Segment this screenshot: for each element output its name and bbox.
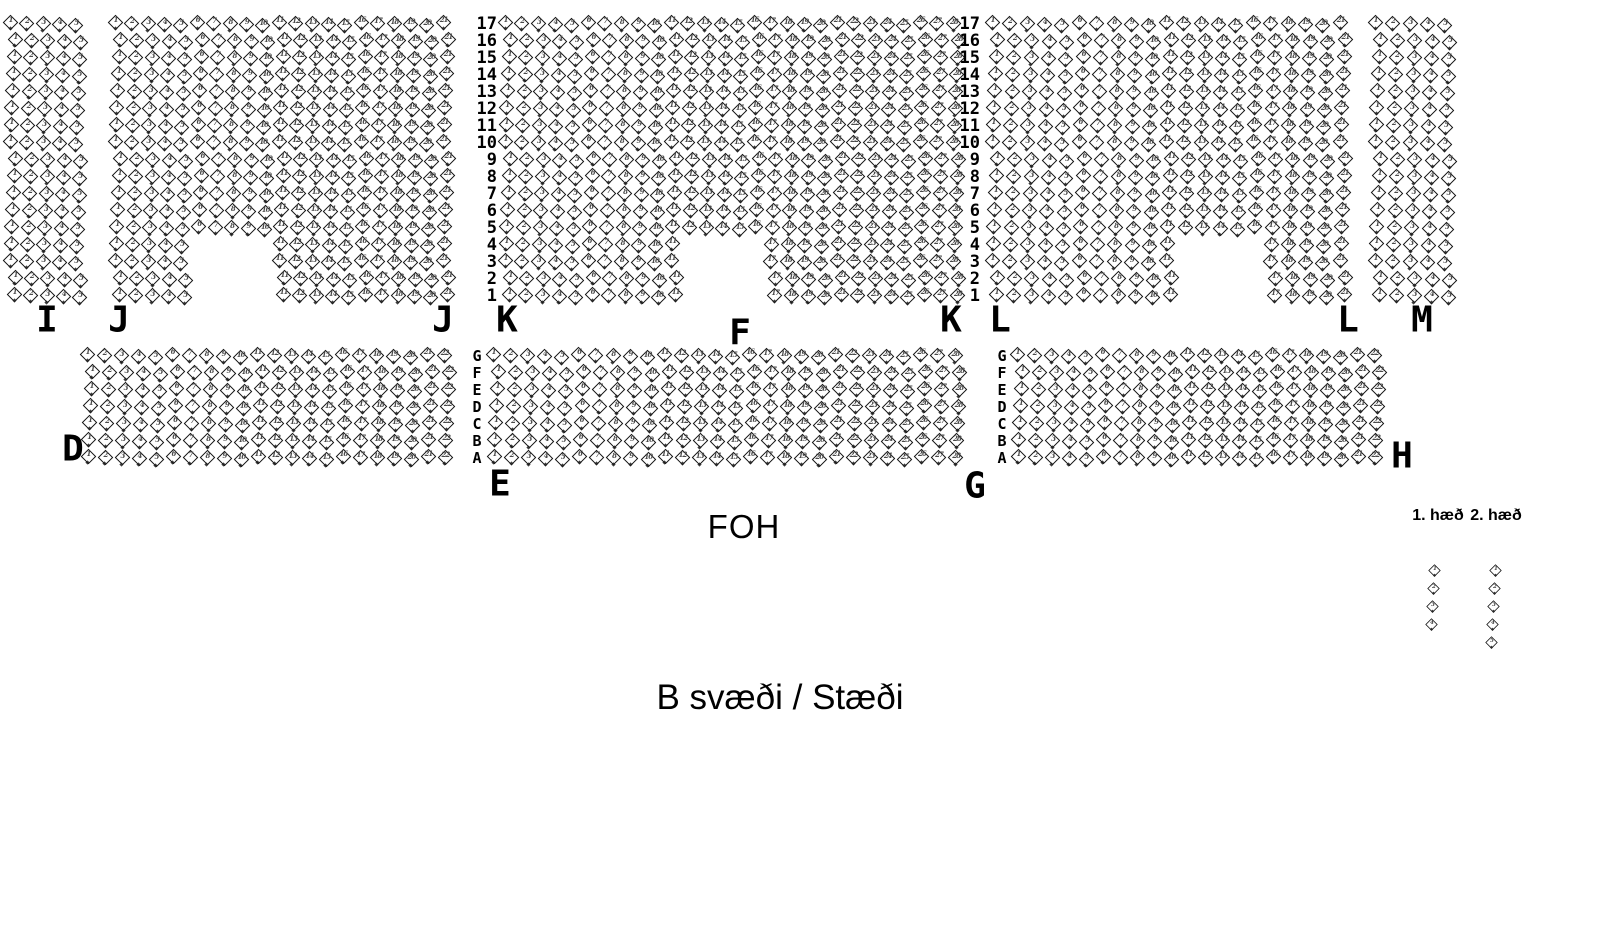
seat-icon[interactable]: 18 xyxy=(780,17,795,32)
seat-icon[interactable]: 14 xyxy=(326,34,341,49)
seat-icon[interactable]: 14 xyxy=(717,187,732,202)
seat-icon[interactable]: 4 xyxy=(132,451,147,466)
seat-icon[interactable]: 13 xyxy=(1214,349,1229,364)
seat-icon[interactable]: 2 xyxy=(1003,254,1018,269)
seat-icon[interactable]: 15 xyxy=(321,418,336,433)
seat-icon[interactable]: 18 xyxy=(777,349,792,364)
seat-icon[interactable]: 2 xyxy=(101,382,116,397)
seat-icon[interactable]: 4 xyxy=(1038,119,1053,134)
seat-icon[interactable]: 1 xyxy=(1369,236,1384,251)
seat-icon[interactable]: 3 xyxy=(525,366,540,381)
seat-icon[interactable]: 2 xyxy=(100,416,115,431)
seat-icon[interactable]: 19 xyxy=(1299,119,1314,134)
seat-icon[interactable]: 15 xyxy=(1229,18,1244,33)
seat-icon[interactable]: 15 xyxy=(342,290,357,305)
seat-icon[interactable]: 8 xyxy=(1112,153,1127,168)
seat-icon[interactable]: 15 xyxy=(734,188,749,203)
seat-icon[interactable]: 23 xyxy=(864,434,879,449)
seat-icon[interactable]: 26 xyxy=(914,236,929,251)
seat-icon[interactable]: 13 xyxy=(1196,221,1211,236)
seat-icon[interactable]: 22 xyxy=(850,67,865,82)
seat-icon[interactable]: 5 xyxy=(175,120,190,135)
seat-icon[interactable]: 18 xyxy=(370,451,385,466)
seat-icon[interactable]: 21 xyxy=(439,66,454,81)
seat-icon[interactable]: 8 xyxy=(614,255,629,270)
seat-icon[interactable]: 9 xyxy=(625,417,640,432)
seat-icon[interactable]: 3 xyxy=(38,85,53,100)
seat-icon[interactable]: 4 xyxy=(552,289,567,304)
seat-icon[interactable]: 16 xyxy=(1250,168,1265,183)
seat-icon[interactable]: 6 xyxy=(194,49,209,64)
seat-icon[interactable]: 3 xyxy=(144,187,159,202)
seat-icon[interactable]: 11 xyxy=(669,270,684,285)
seat-icon[interactable]: 15 xyxy=(320,435,335,450)
seat-icon[interactable]: 1 xyxy=(491,364,506,379)
seat-icon[interactable]: 2 xyxy=(1390,33,1405,48)
seat-icon[interactable]: 21 xyxy=(1336,83,1351,98)
seat-icon[interactable]: 14 xyxy=(325,289,340,304)
seat-icon[interactable]: 8 xyxy=(228,34,243,49)
seat-icon[interactable]: 18 xyxy=(1283,85,1298,100)
seat-icon[interactable]: 20 xyxy=(421,103,436,118)
seat-icon[interactable]: 14 xyxy=(1211,136,1226,151)
seat-icon[interactable]: 2 xyxy=(1030,399,1045,414)
seat-icon[interactable]: 4 xyxy=(1423,85,1438,100)
seat-icon[interactable]: 6 xyxy=(1072,253,1087,268)
seat-icon[interactable]: 2 xyxy=(516,118,531,133)
seat-icon[interactable]: 4 xyxy=(1041,68,1056,83)
seat-icon[interactable]: 18 xyxy=(1300,451,1315,466)
seat-icon[interactable]: 18 xyxy=(391,289,406,304)
seat-icon[interactable]: 4 xyxy=(161,170,176,185)
seat-icon[interactable]: 3 xyxy=(145,51,160,66)
seat-icon[interactable]: 19 xyxy=(408,34,423,49)
seat-icon[interactable]: 1 xyxy=(4,117,19,132)
seat-icon[interactable]: 14 xyxy=(323,102,338,117)
seat-icon[interactable]: 4 xyxy=(136,366,151,381)
seat-icon[interactable]: 17 xyxy=(1266,84,1281,99)
seat-icon[interactable]: 7 xyxy=(210,67,225,82)
seat-icon[interactable]: 15 xyxy=(728,418,743,433)
seat-icon[interactable]: 11 xyxy=(275,66,290,81)
seat-icon[interactable]: 3 xyxy=(36,17,51,32)
seat-icon[interactable]: 3 xyxy=(1405,204,1420,219)
seat-icon[interactable]: 24 xyxy=(883,68,898,83)
seat-icon[interactable]: 4 xyxy=(1424,51,1439,66)
seat-icon[interactable]: 9 xyxy=(241,102,256,117)
seat-icon[interactable]: 18 xyxy=(1301,434,1316,449)
seat-icon[interactable]: 8 xyxy=(1134,366,1149,381)
seat-icon[interactable]: 19 xyxy=(1303,272,1318,287)
seat-icon[interactable]: 19 xyxy=(1298,136,1313,151)
seat-icon[interactable]: 3 xyxy=(524,400,539,415)
seat-icon[interactable]: 3 xyxy=(1047,400,1062,415)
seat-icon[interactable]: 27 xyxy=(935,382,950,397)
seat-icon[interactable]: 1 xyxy=(489,415,504,430)
seat-icon[interactable]: 1 xyxy=(498,15,513,30)
seat-icon[interactable]: 15 xyxy=(342,52,357,67)
seat-icon[interactable]: 2 xyxy=(1003,237,1018,252)
seat-icon[interactable]: 4 xyxy=(134,400,149,415)
seat-icon[interactable]: 20 xyxy=(421,239,436,254)
seat-icon[interactable]: 3 xyxy=(142,238,157,253)
seat-icon[interactable]: 21 xyxy=(1333,134,1348,149)
seat-icon[interactable]: 17 xyxy=(768,50,783,65)
seat-icon[interactable]: 17 xyxy=(765,365,780,380)
seat-icon[interactable]: 11 xyxy=(1162,202,1177,217)
seat-icon[interactable]: 13 xyxy=(310,34,325,49)
seat-icon[interactable]: 7 xyxy=(211,152,226,167)
seat-icon[interactable]: 12 xyxy=(674,348,689,363)
seat-icon[interactable]: 17 xyxy=(1285,399,1300,414)
seat-icon[interactable]: 19 xyxy=(387,451,402,466)
seat-icon[interactable]: 14 xyxy=(321,136,336,151)
seat-icon[interactable]: 16 xyxy=(355,117,370,132)
seat-icon[interactable]: 7 xyxy=(598,254,613,269)
seat-icon[interactable]: 7 xyxy=(599,101,614,116)
seat-icon[interactable]: 10 xyxy=(650,205,665,220)
seat-icon[interactable]: 17 xyxy=(1287,365,1302,380)
seat-icon[interactable]: 21 xyxy=(440,168,455,183)
seat-icon[interactable]: 8 xyxy=(1107,255,1122,270)
seat-icon[interactable]: 16 xyxy=(751,49,766,64)
seat-icon[interactable]: 20 xyxy=(812,452,827,467)
seat-icon[interactable]: 15 xyxy=(321,401,336,416)
seat-icon[interactable]: 18 xyxy=(1281,136,1296,151)
seat-icon[interactable]: 20 xyxy=(1316,256,1331,271)
seat-icon[interactable]: 19 xyxy=(1300,102,1315,117)
seat-icon[interactable]: 19 xyxy=(799,221,814,236)
seat-icon[interactable]: 18 xyxy=(783,204,798,219)
seat-icon[interactable]: 14 xyxy=(303,434,318,449)
seat-icon[interactable]: 9 xyxy=(1147,451,1162,466)
seat-icon[interactable]: 10 xyxy=(1142,18,1157,33)
seat-icon[interactable]: 24 xyxy=(881,434,896,449)
seat-icon[interactable]: 2 xyxy=(515,254,530,269)
seat-icon[interactable]: 3 xyxy=(1047,417,1062,432)
seat-icon[interactable]: 2 xyxy=(1006,186,1021,201)
seat-icon[interactable]: 18 xyxy=(781,119,796,134)
seat-icon[interactable]: 11 xyxy=(253,415,268,430)
seat-icon[interactable]: 8 xyxy=(1132,400,1147,415)
seat-icon[interactable]: 8 xyxy=(618,187,633,202)
seat-icon[interactable]: 14 xyxy=(1215,187,1230,202)
seat-icon[interactable]: 3 xyxy=(1024,51,1039,66)
seat-icon[interactable]: 3 xyxy=(36,255,51,270)
seat-icon[interactable]: 20 xyxy=(1321,154,1336,169)
seat-icon[interactable]: 3 xyxy=(145,289,160,304)
seat-icon[interactable]: 11 xyxy=(667,185,682,200)
seat-icon[interactable]: 26 xyxy=(917,287,932,302)
seat-icon[interactable]: 7 xyxy=(602,50,617,65)
seat-icon[interactable]: 5 xyxy=(1443,273,1458,288)
seat-icon[interactable]: 11 xyxy=(1182,432,1197,447)
seat-icon[interactable]: 4 xyxy=(537,349,552,364)
seat-icon[interactable]: 5 xyxy=(565,137,580,152)
seat-icon[interactable]: 9 xyxy=(625,434,640,449)
seat-icon[interactable]: 2 xyxy=(516,237,531,252)
seat-icon[interactable]: 6 xyxy=(168,398,183,413)
seat-icon[interactable]: 21 xyxy=(441,270,456,285)
seat-icon[interactable]: 19 xyxy=(796,417,811,432)
seat-icon[interactable]: 15 xyxy=(1248,350,1263,365)
seat-icon[interactable]: 25 xyxy=(897,350,912,365)
seat-icon[interactable]: 8 xyxy=(225,221,240,236)
seat-icon[interactable]: 5 xyxy=(1439,120,1454,135)
seat-icon[interactable]: 13 xyxy=(306,238,321,253)
seat-icon[interactable]: 3 xyxy=(1403,136,1418,151)
seat-icon[interactable]: 20 xyxy=(815,222,830,237)
seat-icon[interactable]: 19 xyxy=(403,17,418,32)
seat-icon[interactable]: 3 xyxy=(1408,34,1423,49)
seat-icon[interactable]: 21 xyxy=(1336,185,1351,200)
seat-icon[interactable]: 21 xyxy=(834,49,849,64)
seat-icon[interactable]: 20 xyxy=(814,239,829,254)
seat-icon[interactable]: 9 xyxy=(1127,85,1142,100)
seat-icon[interactable]: 10 xyxy=(1143,222,1158,237)
seat-icon[interactable]: 14 xyxy=(1214,204,1229,219)
seat-icon[interactable]: 19 xyxy=(1300,221,1315,236)
seat-icon[interactable]: 18 xyxy=(1302,417,1317,432)
seat-icon[interactable]: 10 xyxy=(1146,52,1161,67)
seat-icon[interactable]: 1 xyxy=(503,151,518,166)
seat-icon[interactable]: 14 xyxy=(322,119,337,134)
seat-icon[interactable]: 16 xyxy=(336,449,351,464)
seat-icon[interactable]: 12 xyxy=(270,399,285,414)
seat-icon[interactable]: 2 xyxy=(518,67,533,82)
seat-icon[interactable]: 4 xyxy=(548,17,563,32)
seat-icon[interactable]: 2 xyxy=(520,33,535,48)
seat-icon[interactable]: 21 xyxy=(423,398,438,413)
seat-icon[interactable]: 15 xyxy=(1250,435,1265,450)
seat-icon[interactable]: 1 xyxy=(112,49,127,64)
seat-icon[interactable]: 23 xyxy=(865,102,880,117)
seat-icon[interactable]: 2 xyxy=(21,101,36,116)
seat-icon[interactable]: 2 xyxy=(519,50,534,65)
seat-icon[interactable]: 9 xyxy=(633,221,648,236)
seat-icon[interactable]: 16 xyxy=(748,117,763,132)
seat-icon[interactable]: 19 xyxy=(403,136,418,151)
seat-icon[interactable]: 21 xyxy=(828,347,843,362)
seat-icon[interactable]: 4 xyxy=(1041,51,1056,66)
seat-icon[interactable]: 3 xyxy=(1404,119,1419,134)
seat-icon[interactable]: 11 xyxy=(275,202,290,217)
seat-icon[interactable]: 15 xyxy=(1251,418,1266,433)
seat-icon[interactable]: 19 xyxy=(802,34,817,49)
seat-icon[interactable]: 3 xyxy=(141,17,156,32)
seat-icon[interactable]: 7 xyxy=(1090,16,1105,31)
seat-icon[interactable]: 7 xyxy=(1094,271,1109,286)
seat-icon[interactable]: 17 xyxy=(1268,33,1283,48)
seat-icon[interactable]: 10 xyxy=(652,52,667,67)
seat-icon[interactable]: 9 xyxy=(636,34,651,49)
seat-icon[interactable]: 14 xyxy=(1234,417,1249,432)
seat-icon[interactable]: 24 xyxy=(884,289,899,304)
seat-icon[interactable]: 6 xyxy=(1073,236,1088,251)
seat-icon[interactable]: 25 xyxy=(901,171,916,186)
seat-icon[interactable]: 19 xyxy=(1298,255,1313,270)
seat-icon[interactable]: 24 xyxy=(885,272,900,287)
seat-icon[interactable]: 3 xyxy=(522,434,537,449)
seat-icon[interactable]: 15 xyxy=(732,222,747,237)
seat-icon[interactable]: 23 xyxy=(867,170,882,185)
seat-icon[interactable]: 16 xyxy=(354,15,369,30)
seat-icon[interactable]: 20 xyxy=(1338,367,1353,382)
seat-icon[interactable]: 4 xyxy=(56,187,71,202)
seat-icon[interactable]: 6 xyxy=(1074,100,1089,115)
seat-icon[interactable]: 22 xyxy=(1367,348,1382,363)
seat-icon[interactable]: 8 xyxy=(199,349,214,364)
seat-icon[interactable]: 9 xyxy=(1125,119,1140,134)
seat-icon[interactable]: 10 xyxy=(652,290,667,305)
seat-icon[interactable]: 23 xyxy=(865,221,880,236)
seat-icon[interactable]: 16 xyxy=(1251,151,1266,166)
seat-icon[interactable]: 23 xyxy=(863,255,878,270)
seat-icon[interactable]: 5 xyxy=(1056,120,1071,135)
seat-icon[interactable]: 3 xyxy=(533,102,548,117)
seat-icon[interactable]: 13 xyxy=(1199,34,1214,49)
seat-icon[interactable]: 1 xyxy=(987,100,1002,115)
seat-icon[interactable]: 11 xyxy=(277,270,292,285)
seat-icon[interactable]: 16 xyxy=(744,432,759,447)
seat-icon[interactable]: 13 xyxy=(1194,17,1209,32)
seat-icon[interactable]: 7 xyxy=(207,118,222,133)
seat-icon[interactable]: 10 xyxy=(1146,171,1161,186)
seat-icon[interactable]: 9 xyxy=(1146,349,1161,364)
seat-icon[interactable]: 20 xyxy=(818,171,833,186)
seat-icon[interactable]: 5 xyxy=(1057,205,1072,220)
seat-icon[interactable]: 18 xyxy=(778,451,793,466)
seat-icon[interactable]: 2 xyxy=(125,16,140,31)
seat-icon[interactable]: 9 xyxy=(635,170,650,185)
seat-icon[interactable]: 3 xyxy=(523,417,538,432)
seat-icon[interactable]: 13 xyxy=(1219,366,1234,381)
seat-icon[interactable]: 13 xyxy=(1216,434,1231,449)
seat-icon[interactable]: 17 xyxy=(764,254,779,269)
seat-icon[interactable]: 17 xyxy=(1266,203,1281,218)
seat-icon[interactable]: 21 xyxy=(833,83,848,98)
seat-icon[interactable]: 9 xyxy=(1129,34,1144,49)
seat-icon[interactable]: 19 xyxy=(794,349,809,364)
seat-icon[interactable]: 20 xyxy=(425,154,440,169)
seat-icon[interactable]: 20 xyxy=(422,86,437,101)
seat-icon[interactable]: 4 xyxy=(55,204,70,219)
seat-icon[interactable]: 1 xyxy=(490,381,505,396)
seat-icon[interactable]: 11 xyxy=(1161,219,1176,234)
seat-icon[interactable]: 5 xyxy=(151,418,166,433)
seat-icon[interactable]: 11 xyxy=(272,15,287,30)
seat-icon[interactable]: 6 xyxy=(168,415,183,430)
seat-icon[interactable]: 25 xyxy=(897,137,912,152)
seat-icon[interactable]: 21 xyxy=(829,449,844,464)
seat-icon[interactable]: 28 xyxy=(951,400,966,415)
seat-icon[interactable]: 6 xyxy=(1072,134,1087,149)
seat-icon[interactable]: 13 xyxy=(309,289,324,304)
seat-icon[interactable]: 11 xyxy=(665,117,680,132)
seat-icon[interactable]: 1 xyxy=(502,49,517,64)
seat-icon[interactable]: 1 xyxy=(108,134,123,149)
seat-icon[interactable]: 4 xyxy=(56,289,71,304)
seat-icon[interactable]: 24 xyxy=(882,204,897,219)
seat-icon[interactable]: 12 xyxy=(681,135,696,150)
seat-icon[interactable]: 6 xyxy=(195,151,210,166)
seat-icon[interactable]: 5 xyxy=(179,154,194,169)
seat-icon[interactable]: 22 xyxy=(850,365,865,380)
seat-icon[interactable]: 8 xyxy=(202,417,217,432)
seat-icon[interactable]: 3 xyxy=(536,272,551,287)
seat-icon[interactable]: 8 xyxy=(616,102,631,117)
seat-icon[interactable]: 20 xyxy=(1336,418,1351,433)
seat-icon[interactable]: 8 xyxy=(225,85,240,100)
seat-icon[interactable]: 12 xyxy=(681,16,696,31)
seat-icon[interactable]: 1 xyxy=(1015,364,1030,379)
seat-icon[interactable]: 1 xyxy=(501,185,516,200)
seat-icon[interactable]: 4 xyxy=(1042,34,1057,49)
seat-icon[interactable]: 22 xyxy=(851,169,866,184)
seat-icon[interactable]: 1 xyxy=(1010,347,1025,362)
seat-icon[interactable]: 6 xyxy=(584,185,599,200)
seat-icon[interactable]: 14 xyxy=(714,17,729,32)
seat-icon[interactable]: 2 xyxy=(20,135,35,150)
seat-icon[interactable]: 1 xyxy=(6,185,21,200)
seat-icon[interactable]: 13 xyxy=(699,102,714,117)
seat-icon[interactable]: 4 xyxy=(552,51,567,66)
seat-icon[interactable]: 10 xyxy=(1168,367,1183,382)
seat-icon[interactable]: 20 xyxy=(420,18,435,33)
seat-icon[interactable]: 19 xyxy=(798,383,813,398)
seat-icon[interactable]: 18 xyxy=(785,34,800,49)
seat-icon[interactable]: 2 xyxy=(1386,254,1401,269)
seat-icon[interactable]: 28 xyxy=(949,434,964,449)
seat-icon[interactable]: 3 xyxy=(38,221,53,236)
seat-icon[interactable]: 17 xyxy=(1264,135,1279,150)
seat-icon[interactable]: 4 xyxy=(1042,272,1057,287)
seat-icon[interactable]: 11 xyxy=(669,151,684,166)
seat-icon[interactable]: 3 xyxy=(37,238,52,253)
seat-icon[interactable]: 24 xyxy=(883,400,898,415)
seat-icon[interactable]: 6 xyxy=(585,49,600,64)
seat-icon[interactable]: 5 xyxy=(566,222,581,237)
seat-icon[interactable]: 18 xyxy=(391,170,406,185)
seat-icon[interactable]: 24 xyxy=(885,153,900,168)
seat-icon[interactable]: 12 xyxy=(268,450,283,465)
seat-icon[interactable]: 11 xyxy=(1180,347,1195,362)
seat-icon[interactable]: 14 xyxy=(716,204,731,219)
seat-icon[interactable]: 7 xyxy=(603,33,618,48)
seat-icon[interactable]: 3 xyxy=(1407,51,1422,66)
seat-icon[interactable]: 18 xyxy=(782,102,797,117)
seat-icon[interactable]: 4 xyxy=(541,383,556,398)
seat-icon[interactable]: 15 xyxy=(338,137,353,152)
seat-icon[interactable]: 7 xyxy=(603,152,618,167)
seat-icon[interactable]: 15 xyxy=(729,401,744,416)
seat-icon[interactable]: 17 xyxy=(355,416,370,431)
seat-icon[interactable]: 1 xyxy=(489,398,504,413)
seat-icon[interactable]: 20 xyxy=(406,401,421,416)
seat-icon[interactable]: 10 xyxy=(258,205,273,220)
seat-icon[interactable]: 17 xyxy=(371,237,386,252)
seat-icon[interactable]: 27 xyxy=(930,16,945,31)
seat-icon[interactable]: 10 xyxy=(648,137,663,152)
seat-icon[interactable]: 15 xyxy=(341,69,356,84)
seat-icon[interactable]: 11 xyxy=(660,398,675,413)
seat-icon[interactable]: 4 xyxy=(553,272,568,287)
seat-icon[interactable]: 21 xyxy=(440,49,455,64)
seat-icon[interactable]: 11 xyxy=(251,449,266,464)
seat-icon[interactable]: 12 xyxy=(682,101,697,116)
seat-icon[interactable]: 2 xyxy=(1005,84,1020,99)
seat-icon[interactable]: 1 xyxy=(1368,134,1383,149)
